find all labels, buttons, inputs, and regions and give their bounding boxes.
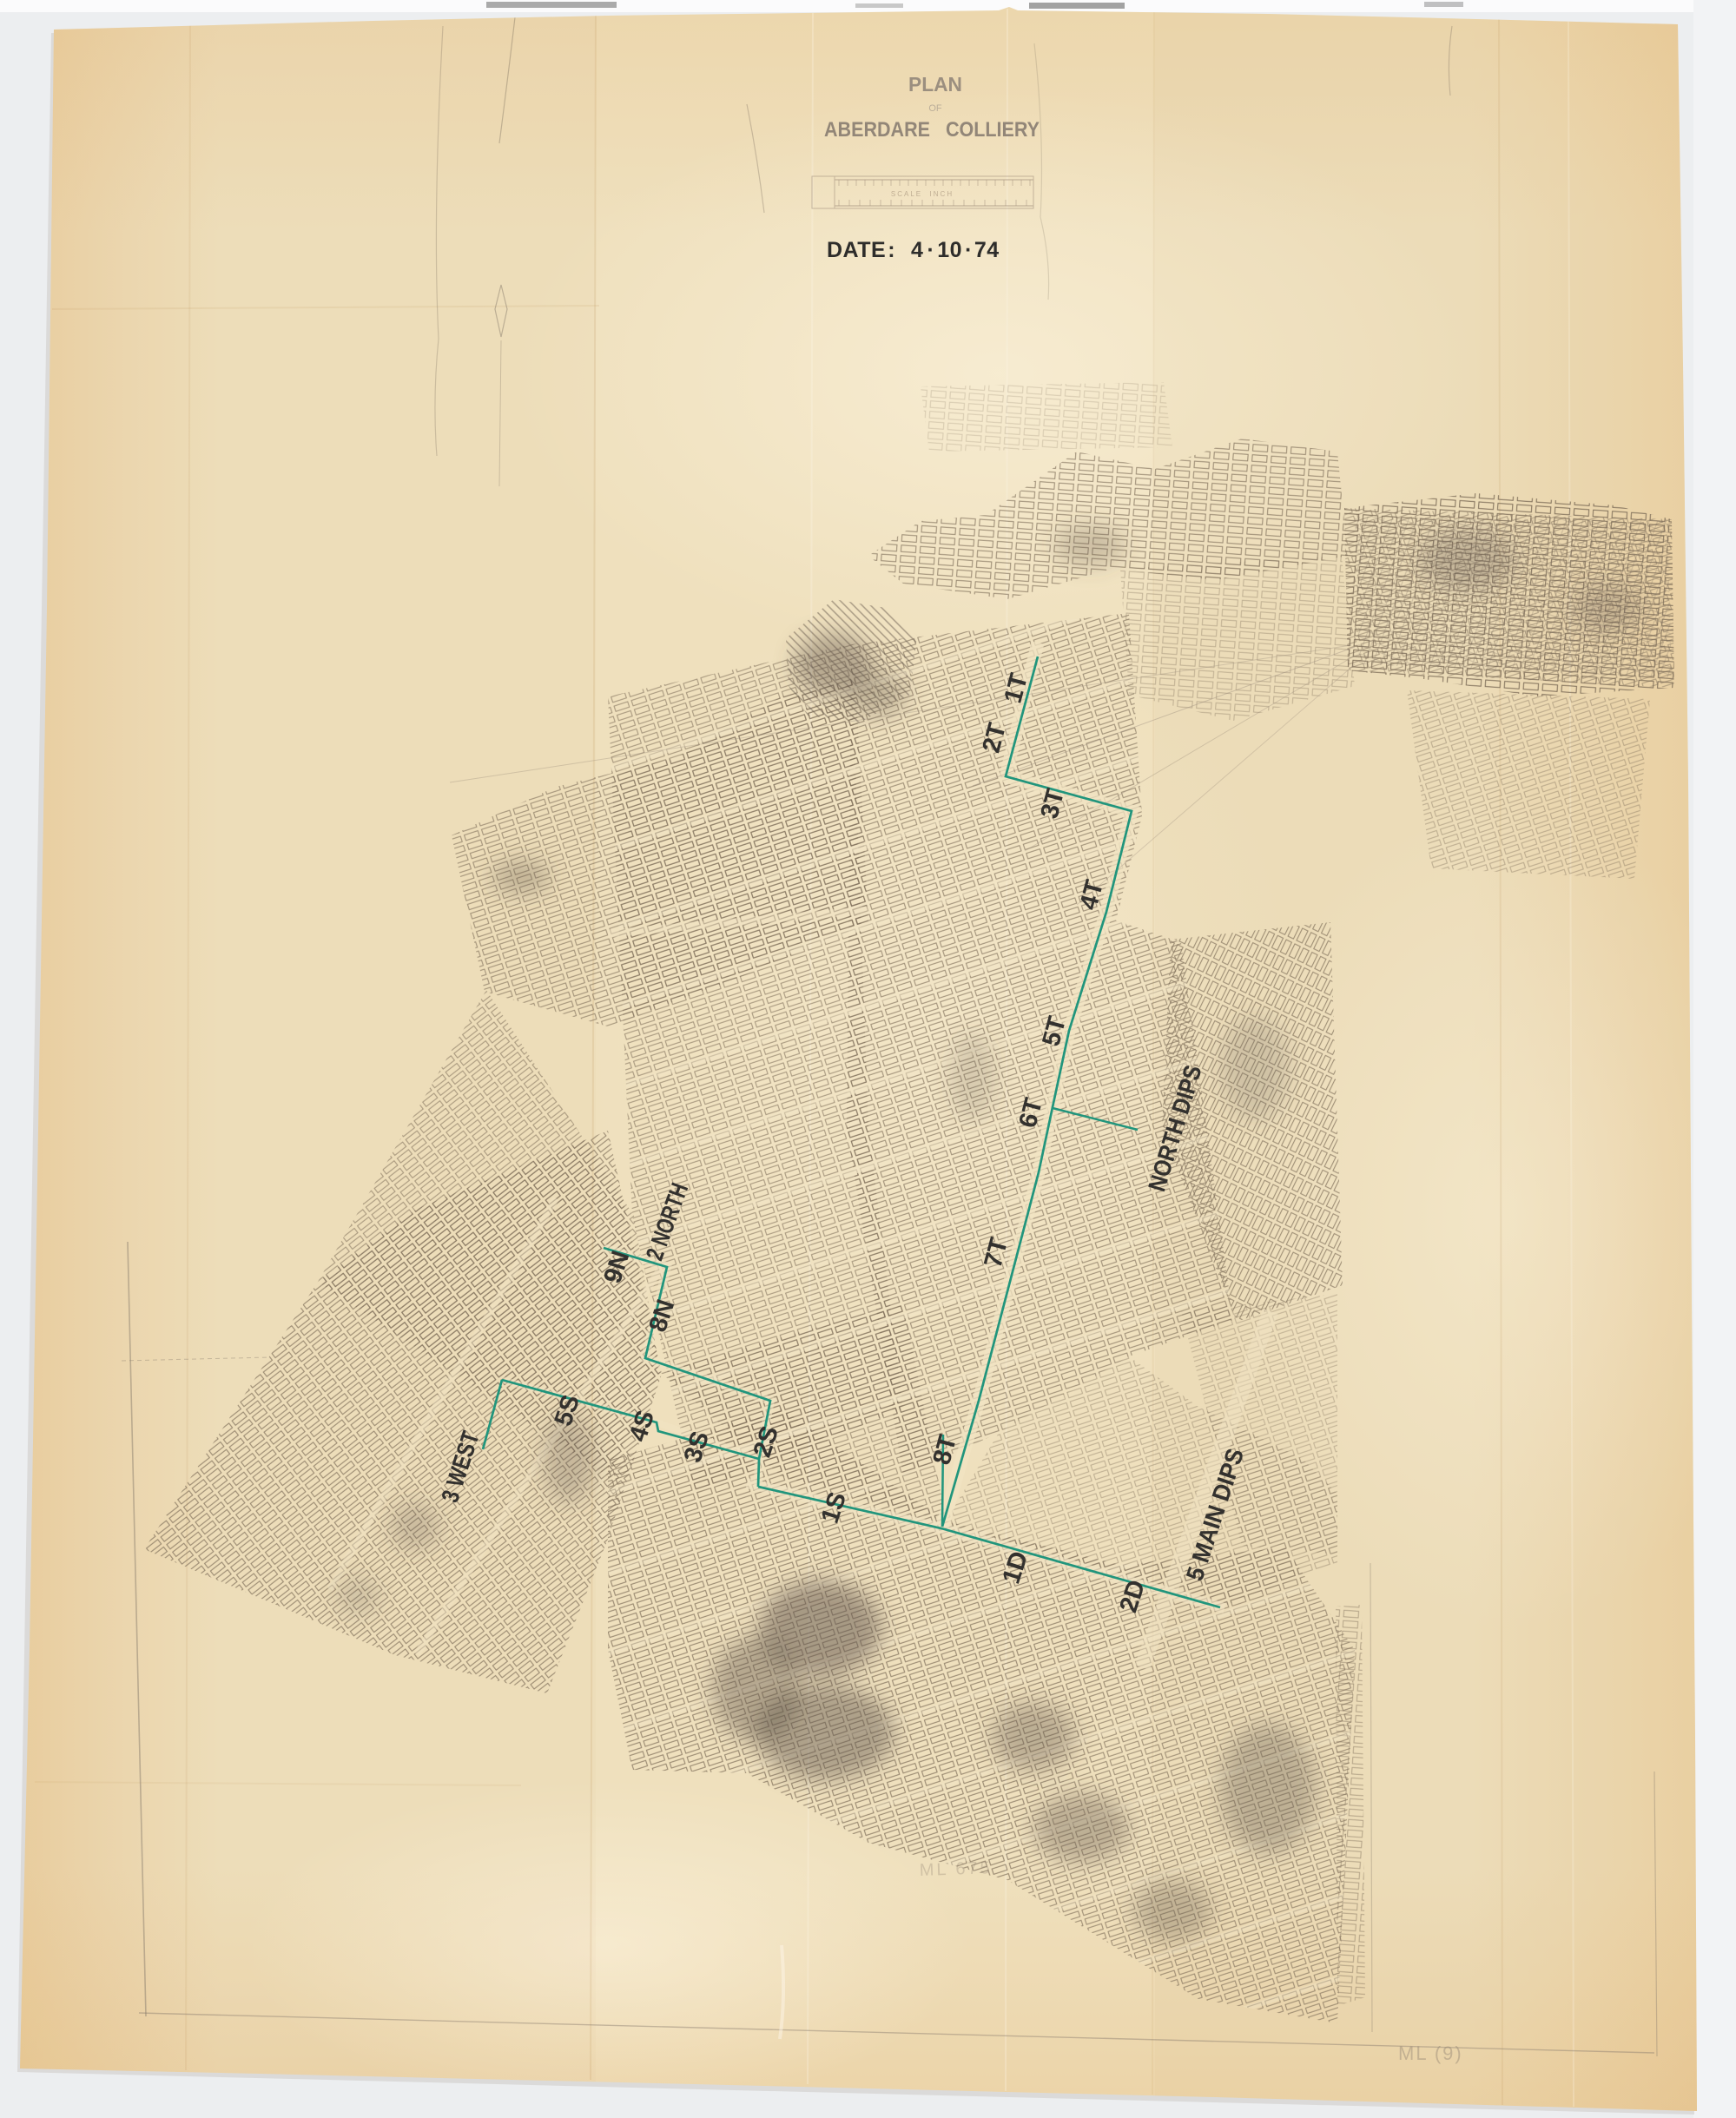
svg-text:ML 675: ML 675: [919, 1858, 993, 1880]
svg-text:OF: OF: [928, 103, 942, 114]
svg-text:ABERDARE COLLIERY: ABERDARE COLLIERY: [824, 118, 1040, 142]
svg-text:PLAN: PLAN: [908, 73, 962, 96]
svg-text:SCALE INCH: SCALE INCH: [891, 190, 954, 198]
svg-text:ML (9): ML (9): [1398, 2042, 1463, 2064]
